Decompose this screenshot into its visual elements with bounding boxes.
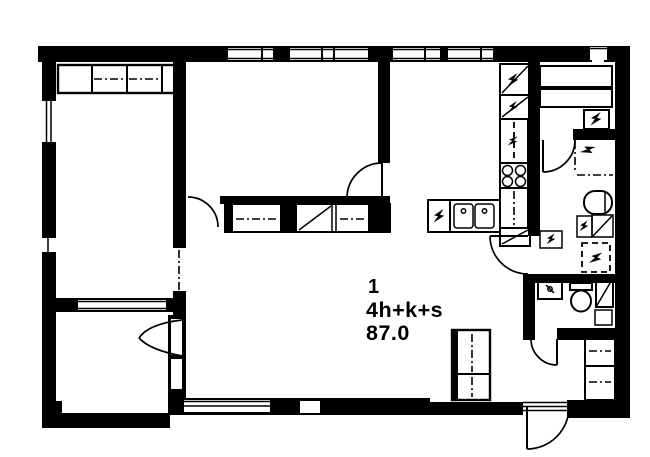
entrance-threshold-icon [523,403,567,411]
window-icon [448,48,493,60]
washbasin-icon [584,191,612,214]
wc [531,278,613,365]
washbasin-icon [538,282,562,299]
balcony [139,315,186,400]
appliance-box [577,216,592,237]
hall-wardrobe [452,330,490,400]
floor-plan: 1 4h+k+s 87.0 [0,0,650,457]
window-icon [290,48,368,60]
balcony-door-icon [139,319,182,389]
vent-box-icon [300,401,320,413]
sauna [540,66,615,173]
apartment-type: 4h+k+s [366,298,443,322]
kitchen [428,64,530,246]
toilet-icon [570,283,592,312]
double-sink-icon [454,204,494,228]
window-icon [42,237,56,253]
window-icon [393,48,440,60]
fridge-icon [500,64,530,95]
bedroom-3 [347,62,390,198]
apartment-number: 1 [368,276,379,298]
duct-diagonal-icon [592,215,613,237]
sauna-bench-icon [540,66,612,87]
sauna-heater-icon [584,110,609,129]
wardrobe-row [58,65,177,93]
door-swing-arc-icon [347,163,382,198]
outer-walls [38,46,630,428]
window-icon [78,300,166,310]
entrance-hall [452,330,615,449]
door-swing-arc-icon [543,140,575,172]
freezer-icon [500,95,530,119]
door-swing-arc-icon [531,339,557,365]
washing-machine-reservation-icon [582,243,610,272]
door-swing-arc-icon [490,236,528,274]
bedroom-2 [188,196,390,232]
window-icon [42,100,56,143]
dishwasher-icon [500,119,528,163]
apartment-label: 1 4h+k+s 87.0 [366,276,443,345]
sauna-bench-icon [540,89,612,107]
door-swing-arc-icon [188,197,218,227]
washroom [490,175,613,274]
counter [500,188,528,228]
bedroom-1 [42,62,186,318]
floor-plan-drawing: 1 4h+k+s 87.0 [0,0,650,457]
window-icon [228,48,273,60]
wardrobe-diagonal-icon [299,206,331,230]
sink-counter [428,200,500,232]
hall-wardrobe-right [585,337,615,400]
stove-icon [500,163,528,188]
apartment-area: 87.0 [366,321,410,345]
appliance-box [540,231,562,248]
entrance-door-arc-icon [527,407,569,449]
